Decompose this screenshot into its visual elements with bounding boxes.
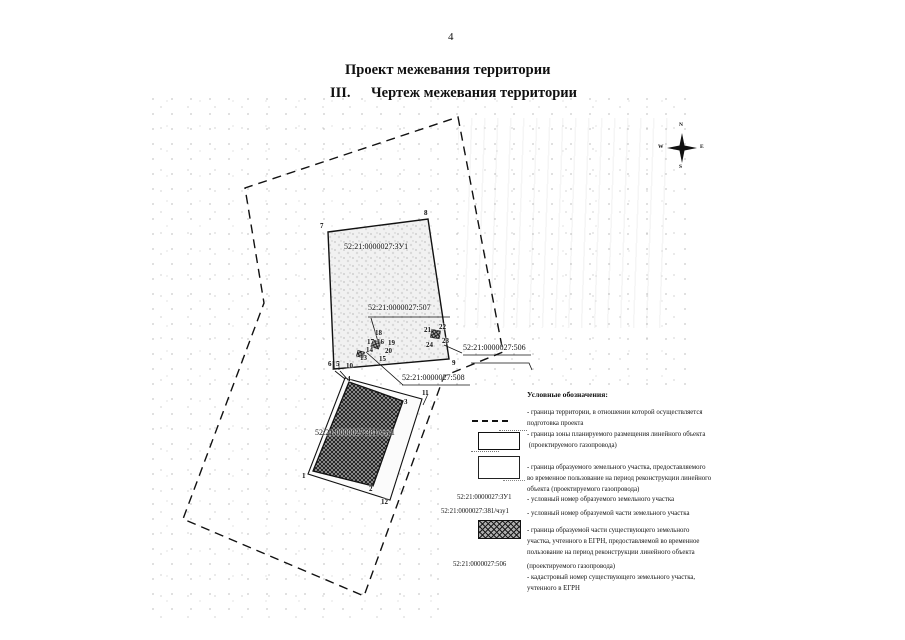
vertex-label-12: 12 [381, 499, 388, 506]
parcel-label: 52:21:0000027:507 [368, 304, 431, 312]
compass-south-label: S [679, 165, 682, 171]
vertex-label-19: 19 [388, 340, 395, 347]
vertex-label-5: 5 [336, 361, 340, 368]
parcel-label: 52:21:0000027:ЗУ1 [344, 243, 408, 251]
vertex-label-16: 16 [377, 339, 384, 346]
vertex-label-13: 13 [360, 355, 367, 362]
compass-north-label: N [679, 123, 683, 129]
legend-item-text: - условный номер образуемой части земель… [527, 508, 727, 519]
survey-map: 52:21:0000027:ЗУ152:21:0000027:50752:21:… [0, 0, 905, 640]
legend-item-text: (проектируемого газопровода) - кадастров… [527, 561, 727, 594]
parcel-label: 52:21:0000027:508 [402, 374, 465, 382]
zone-boundary-symbol [478, 432, 520, 450]
vertex-label-10: 10 [346, 363, 353, 370]
legend-header: Условные обозначения: [527, 390, 608, 399]
vertex-label-15: 15 [379, 356, 386, 363]
vertex-label-11: 11 [422, 390, 429, 397]
vertex-label-20: 20 [385, 348, 392, 355]
vertex-label-9: 9 [452, 360, 456, 367]
compass-east-label: E [700, 145, 704, 151]
legend-item-text: - граница территории, в отношении которо… [527, 407, 727, 429]
vertex-label-8: 8 [424, 210, 428, 217]
vertex-label-4: 4 [347, 376, 351, 383]
vertex-label-14: 14 [366, 347, 373, 354]
vertex-label-18: 18 [375, 330, 382, 337]
label-506-bracket [471, 363, 532, 370]
vertex-label-21: 21 [424, 327, 431, 334]
vertex-label-23: 23 [442, 338, 449, 345]
formed-parcel-symbol [478, 456, 520, 479]
vertex-label-3: 3 [404, 399, 408, 406]
compass-west-label: W [658, 145, 664, 151]
hatched-part-symbol [478, 520, 521, 539]
vertex-label-17: 17 [367, 339, 374, 346]
compass-icon [667, 133, 697, 163]
vertex-label-2: 2 [369, 486, 373, 493]
legend-item-text: - условный номер образуемого земельного … [527, 494, 727, 505]
vertex-label-24: 24 [426, 342, 433, 349]
parcel-label: 52:21:0000027:506 [463, 344, 526, 352]
map-geometry [0, 0, 905, 640]
vertex-label-6: 6 [328, 361, 332, 368]
legend-label-zu1: 52:21:0000027:ЗУ1 [457, 494, 512, 501]
legend-item-text: - граница образуемого земельного участка… [527, 462, 727, 495]
dashed-line-symbol [472, 420, 510, 422]
legend-item-text: - граница образуемой части существующего… [527, 525, 727, 558]
vertex-label-22: 22 [439, 324, 446, 331]
vertex-label-7: 7 [320, 223, 324, 230]
vertex-label-1: 1 [302, 473, 306, 480]
legend-label-506: 52:21:0000027:506 [453, 561, 506, 568]
legend-label-381: 52:21:0000027:381/чзу1 [441, 508, 509, 515]
parcel-label: 52:21:0000027:381/чзу1 [315, 429, 395, 437]
legend-item-text: - граница зоны планируемого размещения л… [527, 429, 727, 451]
